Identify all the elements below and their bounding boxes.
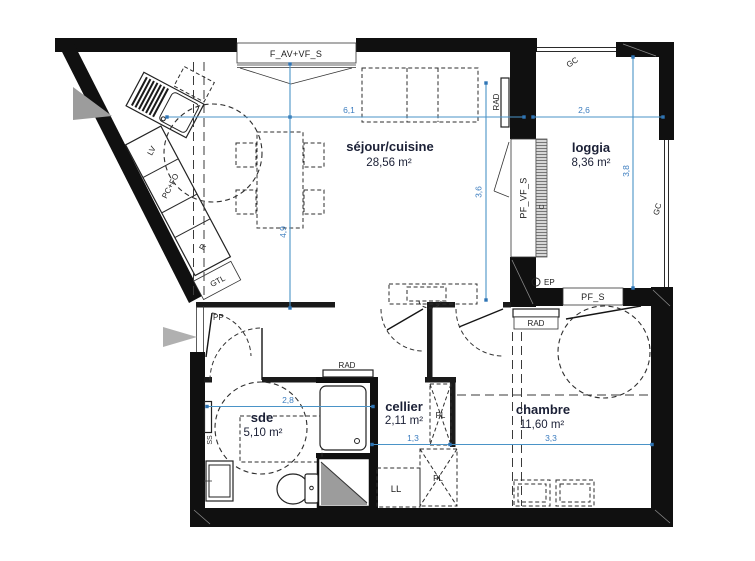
closet-upper: PL bbox=[430, 384, 451, 445]
room-label-sejour: séjour/cuisine 28,56 m² bbox=[346, 139, 433, 169]
guardrail-label: GC bbox=[565, 55, 580, 69]
washbasin-icon bbox=[204, 461, 233, 501]
dining-table bbox=[257, 132, 303, 228]
dimension-label: 3,6 bbox=[474, 186, 484, 198]
entry-arrow-icon bbox=[163, 327, 197, 347]
chair bbox=[304, 190, 324, 214]
room-label-sde: sde 5,10 m² bbox=[244, 410, 283, 439]
room-label-chambre: chambre 11,60 m² bbox=[516, 402, 570, 431]
room-area: 28,56 m² bbox=[366, 157, 412, 169]
closet-label: PL bbox=[436, 411, 446, 420]
window-label: PF_S bbox=[581, 292, 605, 302]
dimension-label: 3,3 bbox=[545, 433, 557, 443]
shutter-label: C bbox=[539, 204, 546, 209]
room-name: séjour/cuisine bbox=[346, 139, 433, 154]
dimension-label: 2,8 bbox=[282, 395, 294, 405]
closet-lower: PL bbox=[420, 449, 457, 506]
radiator-icon bbox=[323, 370, 373, 377]
floor-plan-page: GC GC F_AV+VF_S PF_VF_S C PF_S PP bbox=[0, 0, 755, 561]
room-area: 2,11 m² bbox=[385, 415, 423, 427]
dimension-label: 3,8 bbox=[621, 165, 631, 177]
top-window: F_AV+VF_S bbox=[237, 43, 356, 84]
room-name: chambre bbox=[516, 402, 570, 417]
radiator-label: RAD bbox=[528, 319, 545, 328]
toilet-icon bbox=[277, 474, 318, 504]
dimension-label: 2,6 bbox=[578, 105, 590, 115]
window-label: PF_VF_S bbox=[519, 177, 529, 218]
dimension-label: 1,3 bbox=[407, 433, 419, 443]
window-label: F_AV+VF_S bbox=[270, 49, 322, 59]
room-area: 11,60 m² bbox=[520, 419, 565, 431]
entry-door-label: PP bbox=[213, 313, 224, 322]
room-name: loggia bbox=[572, 140, 611, 155]
radiator-icon bbox=[513, 309, 559, 317]
technical-shaft bbox=[318, 458, 370, 507]
turning-circle bbox=[558, 306, 650, 398]
dimension-label: 4,9 bbox=[278, 226, 288, 238]
dimension-lines: 6,1 4,9 3,6 2,6 3,8 2,8 1,3 3,3 bbox=[165, 55, 664, 446]
chair bbox=[236, 143, 256, 167]
room-area: 8,36 m² bbox=[572, 157, 611, 169]
chair bbox=[236, 190, 256, 214]
floor-plan: GC GC F_AV+VF_S PF_VF_S C PF_S PP bbox=[0, 0, 755, 561]
radiator-icon bbox=[501, 78, 509, 127]
washing-machine-label: LL bbox=[391, 484, 402, 495]
dimension-label: 6,1 bbox=[343, 105, 355, 115]
towel-radiator-label: SS bbox=[207, 435, 214, 445]
radiator-label: RAD bbox=[339, 361, 356, 370]
chair bbox=[304, 143, 324, 167]
room-name: sde bbox=[251, 410, 273, 425]
closet-label: PL bbox=[433, 474, 443, 483]
radiator-label: RAD bbox=[492, 93, 501, 110]
rainwater-downpipe-label: EP bbox=[544, 278, 555, 287]
room-area: 5,10 m² bbox=[244, 427, 283, 439]
rolling-shutter-hatch bbox=[536, 139, 547, 257]
sejour-loggia-window: PF_VF_S C bbox=[494, 139, 547, 257]
guardrail-label: GC bbox=[652, 202, 664, 216]
room-label-loggia: loggia 8,36 m² bbox=[572, 140, 611, 169]
room-label-cellier: cellier 2,11 m² bbox=[385, 399, 423, 427]
room-name: cellier bbox=[385, 399, 423, 414]
